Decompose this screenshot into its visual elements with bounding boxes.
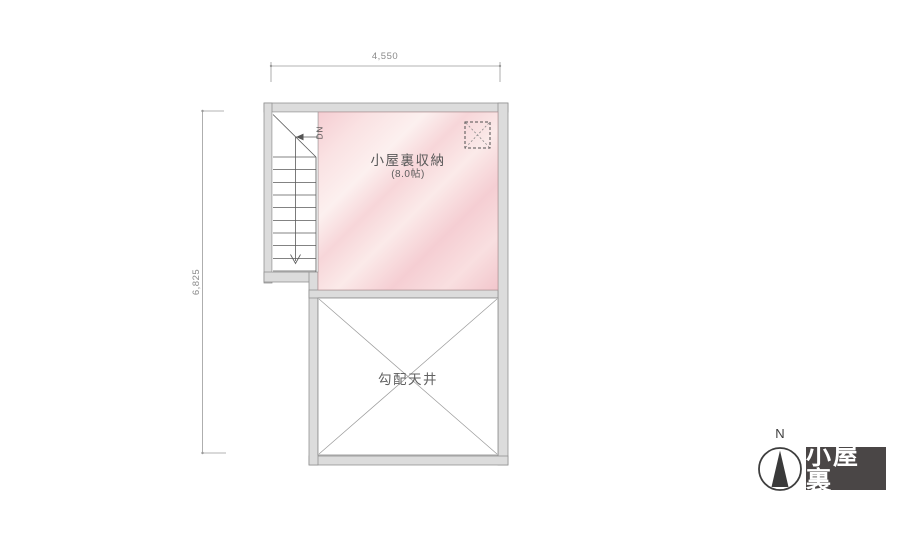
attic-floor-plan-page: 4,550 6,825 小屋裏収納 (8.0帖) 勾配天井 DN N 小屋裏 xyxy=(0,0,900,536)
wall-bottom xyxy=(309,456,508,465)
wall-notch-vertical xyxy=(309,272,318,465)
floor-name-badge: 小屋裏 xyxy=(806,447,886,490)
compass-icon xyxy=(759,448,801,490)
wall-top xyxy=(264,103,508,112)
dimension-left xyxy=(201,110,226,454)
wall-right xyxy=(498,103,508,465)
dimension-top xyxy=(270,62,501,82)
floor-name-badge-label: 小屋裏 xyxy=(806,444,886,494)
floor-plan-drawing xyxy=(0,0,900,536)
room-storage-floor xyxy=(318,112,498,290)
wall-mid-horizontal xyxy=(309,290,498,298)
wall-left-upper xyxy=(264,103,272,283)
